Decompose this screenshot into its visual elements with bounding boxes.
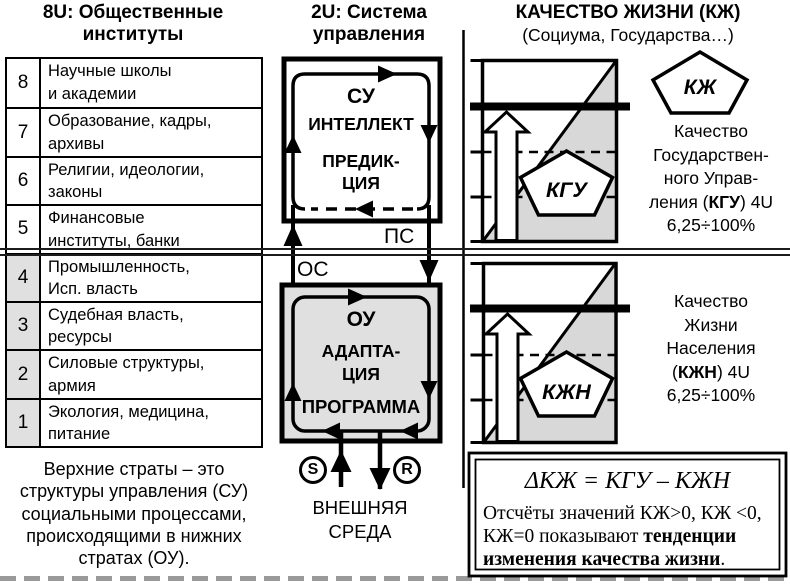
formula-note-line2: Отсчёты значений КЖ>0, КЖ <0, [483,503,781,525]
quality-subheading: (Социума, Государства…) [466,25,790,46]
upper-strata-note: Верхние страты – это структуры управлени… [0,458,268,569]
table-row-7: 7 Образование, кадры,архивы [7,107,261,155]
prediction-label: ПРЕДИК- ЦИЯ [288,150,434,194]
kjn-caption: Качество Жизни Населения (КЖН) 4U 6,25÷1… [634,290,788,408]
row-number-cell: 1 [7,400,41,446]
table-row-8: 8 Научные школыи академии [7,59,261,107]
su-outer-box [284,59,440,221]
formula-note-line4: изменения качества жизни. [483,549,781,571]
intellect-label: ИНТЕЛЛЕКТ [288,114,434,135]
diagram-canvas: 8U: Общественные институты 8 Научные шко… [0,0,790,585]
row-text: Судебная власть,ресурсы [41,303,261,349]
threshold-bar [470,305,630,313]
row-number-cell: 7 [7,109,41,155]
strata-divider-double-line [0,248,790,256]
row-number-cell: 8 [7,59,41,107]
su-label: СУ [288,85,434,109]
control-system-title: 2U: Система управления [288,2,450,46]
row-number-cell: 6 [7,158,41,204]
row-number-cell: 4 [7,255,41,301]
table-row-1: 1 Экология, медицина,питание [7,398,261,446]
row-text: Научные школыи академии [41,59,261,107]
s-label: S [301,461,325,479]
row-text: Образование, кадры,архивы [41,109,261,155]
table-row-4: 4 Промышленность,Исп. власть [7,253,261,301]
row-text: Силовые структуры,армия [41,351,261,397]
r-label: R [395,461,419,479]
row-number-cell: 2 [7,351,41,397]
threshold-bar [470,103,630,111]
kgu-chart [470,61,630,242]
row-number-cell: 5 [7,206,41,252]
formula-note-line3: КЖ=0 показывают тенденции [483,526,781,548]
environment-label: ВНЕШНЯЯ СРЕДА [290,496,430,544]
adaptation-label: АДАПТА- ЦИЯ [288,340,434,386]
ou-label: ОУ [288,308,434,332]
left-column-title: 8U: Общественные институты [2,2,264,46]
table-row-3: 3 Судебная власть,ресурсы [7,301,261,349]
formula: ΔКЖ = КГУ – КЖН [470,468,785,495]
kjn-label: КЖН [520,380,613,405]
kgu-caption: Качество Государствен- ного Управ- ления… [634,120,788,238]
os-label: ОС [297,258,343,282]
row-text: Экология, медицина,питание [41,400,261,446]
table-row-5: 5 Финансовыеинституты, банки [7,204,261,252]
row-text: Финансовыеинституты, банки [41,206,261,252]
kjn-chart [470,264,630,443]
row-number-cell: 3 [7,303,41,349]
table-row-6: 6 Религии, идеологии,законы [7,156,261,204]
quality-heading: КАЧЕСТВО ЖИЗНИ (КЖ) [466,2,790,24]
kj-label: КЖ [653,76,747,100]
ps-label: ПС [384,225,430,249]
table-row-2: 2 Силовые структуры,армия [7,349,261,397]
kgu-label: КГУ [520,178,613,203]
row-text: Религии, идеологии,законы [41,158,261,204]
program-label: ПРОГРАММА [288,396,434,418]
row-text: Промышленность,Исп. власть [41,255,261,301]
